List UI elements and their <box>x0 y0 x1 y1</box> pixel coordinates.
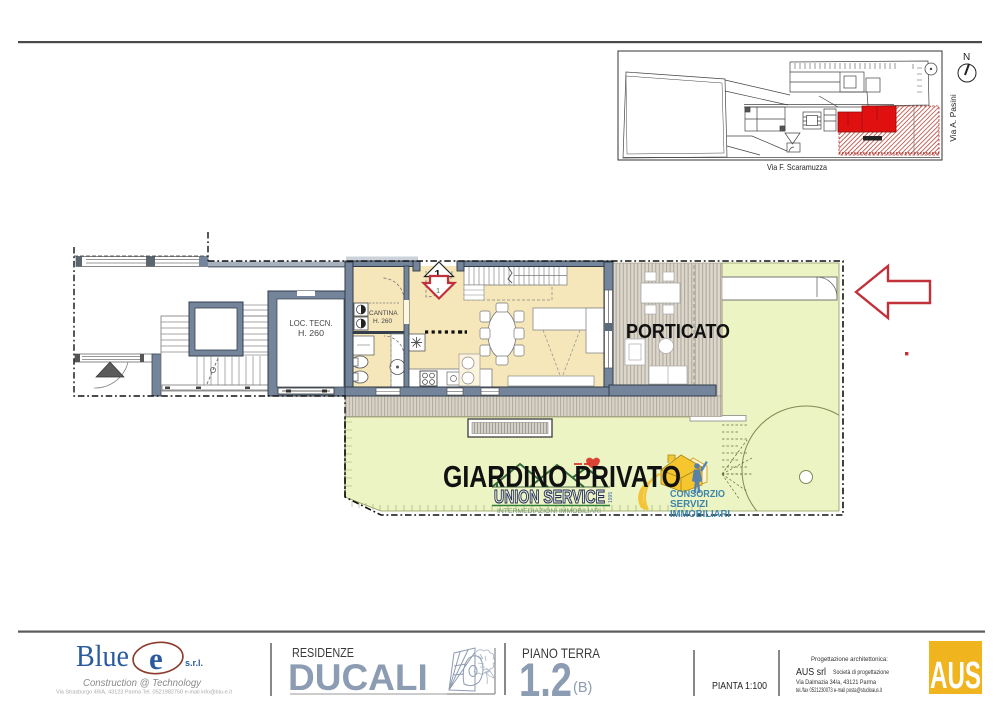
svg-text:IMMOBILIARI: IMMOBILIARI <box>670 509 730 520</box>
svg-text:AUS: AUS <box>930 655 981 697</box>
svg-text:Società di progettazione: Società di progettazione <box>833 669 889 676</box>
svg-text:Blue: Blue <box>76 638 129 673</box>
svg-text:H. 260: H. 260 <box>373 318 393 325</box>
svg-text:(B): (B) <box>573 680 592 696</box>
svg-text:LOC. TECN.: LOC. TECN. <box>290 319 333 328</box>
svg-text:Via Strasburgo 49/A, 43123 Par: Via Strasburgo 49/A, 43123 Parma Tel. 05… <box>56 690 233 696</box>
svg-text:PORTICATO: PORTICATO <box>626 320 730 343</box>
svg-text:1995: 1995 <box>608 492 614 503</box>
svg-text:UNION SERVICE: UNION SERVICE <box>494 486 605 507</box>
svg-text:s.r.l.: s.r.l. <box>185 658 203 668</box>
svg-text:1: 1 <box>436 286 440 295</box>
svg-text:CANTINA: CANTINA <box>369 310 398 317</box>
svg-text:1.2: 1.2 <box>519 653 572 706</box>
svg-text:Construction @ Technology: Construction @ Technology <box>83 678 202 689</box>
svg-text:N: N <box>963 52 970 63</box>
svg-text:Via Dalmazia 34/a, 43121 Parma: Via Dalmazia 34/a, 43121 Parma <box>796 679 876 686</box>
svg-text:Via A. Pasini: Via A. Pasini <box>948 94 958 142</box>
svg-text:e: e <box>149 641 163 676</box>
svg-text:DUCALI: DUCALI <box>288 657 428 698</box>
svg-text:PIANTA 1:100: PIANTA 1:100 <box>712 681 767 692</box>
svg-text:Via F. Scaramuzza: Via F. Scaramuzza <box>767 162 827 172</box>
svg-text:Progettazione architettonica:: Progettazione architettonica: <box>811 656 888 663</box>
svg-text:INTERMEDIAZIONI IMMOBILIARI: INTERMEDIAZIONI IMMOBILIARI <box>497 508 601 515</box>
svg-text:H. 260: H. 260 <box>298 329 324 338</box>
svg-text:tel./fax 0521230073 e-mail pos: tel./fax 0521230073 e-mail posta@studioa… <box>796 687 882 694</box>
svg-text:AUS srl: AUS srl <box>796 666 826 678</box>
